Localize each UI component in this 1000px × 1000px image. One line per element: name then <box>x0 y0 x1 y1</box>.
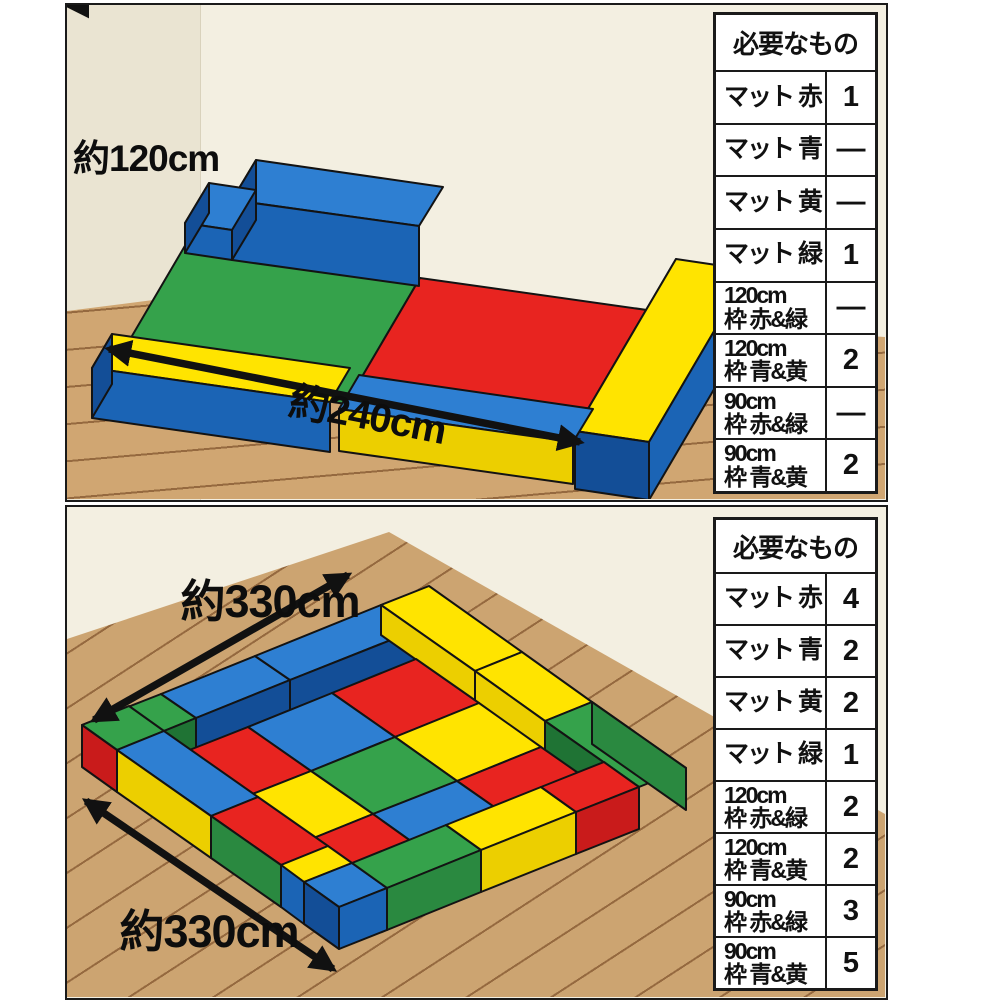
table-row: 120cm 枠 赤&緑 — <box>716 281 875 334</box>
table-row: マット 青 2 <box>716 624 875 676</box>
parts-table-header: 必要なもの <box>716 15 875 70</box>
part-label: マット 青 <box>716 626 825 676</box>
part-qty: — <box>825 125 875 176</box>
part-qty: 3 <box>825 886 875 936</box>
part-qty: 1 <box>825 730 875 780</box>
part-qty: 2 <box>825 626 875 676</box>
part-label: マット 黄 <box>716 177 825 228</box>
panel-nine-mat-layout: 約330cm 約330cm 必要なもの マット 赤 4 マット 青 2 マット … <box>65 505 888 1000</box>
dim-label-120cm: 約120cm <box>73 138 219 179</box>
part-label: 120cm 枠 赤&緑 <box>716 283 825 334</box>
part-label: 90cm 枠 赤&緑 <box>716 388 825 439</box>
part-label: 90cm 枠 青&黄 <box>716 440 825 491</box>
table-row: マット 緑 1 <box>716 228 875 281</box>
parts-table: 必要なもの マット 赤 4 マット 青 2 マット 黄 2 マット 緑 1 12… <box>713 517 878 991</box>
table-row: 120cm 枠 赤&緑 2 <box>716 780 875 832</box>
dim-label-330cm-left: 約330cm <box>119 906 298 957</box>
table-row: 90cm 枠 青&黄 2 <box>716 438 875 491</box>
part-label: マット 緑 <box>716 230 825 281</box>
part-label: 120cm 枠 青&黄 <box>716 335 825 386</box>
table-row: 120cm 枠 青&黄 2 <box>716 333 875 386</box>
panel-two-mat-layout: 約120cm 約240cm 必要なもの マット 赤 1 マット 青 — マット … <box>65 3 888 502</box>
parts-table-header: 必要なもの <box>716 520 875 572</box>
table-row: 90cm 枠 青&黄 5 <box>716 936 875 988</box>
part-qty: 2 <box>825 678 875 728</box>
part-label: 90cm 枠 赤&緑 <box>716 886 825 936</box>
table-row: マット 赤 1 <box>716 70 875 123</box>
table-row: マット 黄 — <box>716 175 875 228</box>
part-qty: 2 <box>825 782 875 832</box>
table-row: 120cm 枠 青&黄 2 <box>716 832 875 884</box>
table-row: 90cm 枠 赤&緑 — <box>716 386 875 439</box>
part-label: マット 黄 <box>716 678 825 728</box>
part-qty: — <box>825 388 875 439</box>
dim-label-330cm-top: 約330cm <box>180 576 359 627</box>
table-row: マット 黄 2 <box>716 676 875 728</box>
part-label: 120cm 枠 赤&緑 <box>716 782 825 832</box>
parts-table: 必要なもの マット 赤 1 マット 青 — マット 黄 — マット 緑 1 12… <box>713 12 878 494</box>
part-label: マット 緑 <box>716 730 825 780</box>
table-row: マット 青 — <box>716 123 875 176</box>
table-row: マット 緑 1 <box>716 728 875 780</box>
part-qty: 1 <box>825 230 875 281</box>
part-qty: 1 <box>825 72 875 123</box>
part-qty: 2 <box>825 440 875 491</box>
part-qty: 5 <box>825 938 875 988</box>
part-label: マット 赤 <box>716 72 825 123</box>
table-row: マット 赤 4 <box>716 572 875 624</box>
part-qty: — <box>825 177 875 228</box>
part-label: 90cm 枠 青&黄 <box>716 938 825 988</box>
part-qty: 2 <box>825 834 875 884</box>
part-label: マット 青 <box>716 125 825 176</box>
part-label: マット 赤 <box>716 574 825 624</box>
part-qty: 4 <box>825 574 875 624</box>
part-label: 120cm 枠 青&黄 <box>716 834 825 884</box>
frame-right-end <box>575 431 649 499</box>
part-qty: — <box>825 283 875 334</box>
table-row: 90cm 枠 赤&緑 3 <box>716 884 875 936</box>
part-qty: 2 <box>825 335 875 386</box>
